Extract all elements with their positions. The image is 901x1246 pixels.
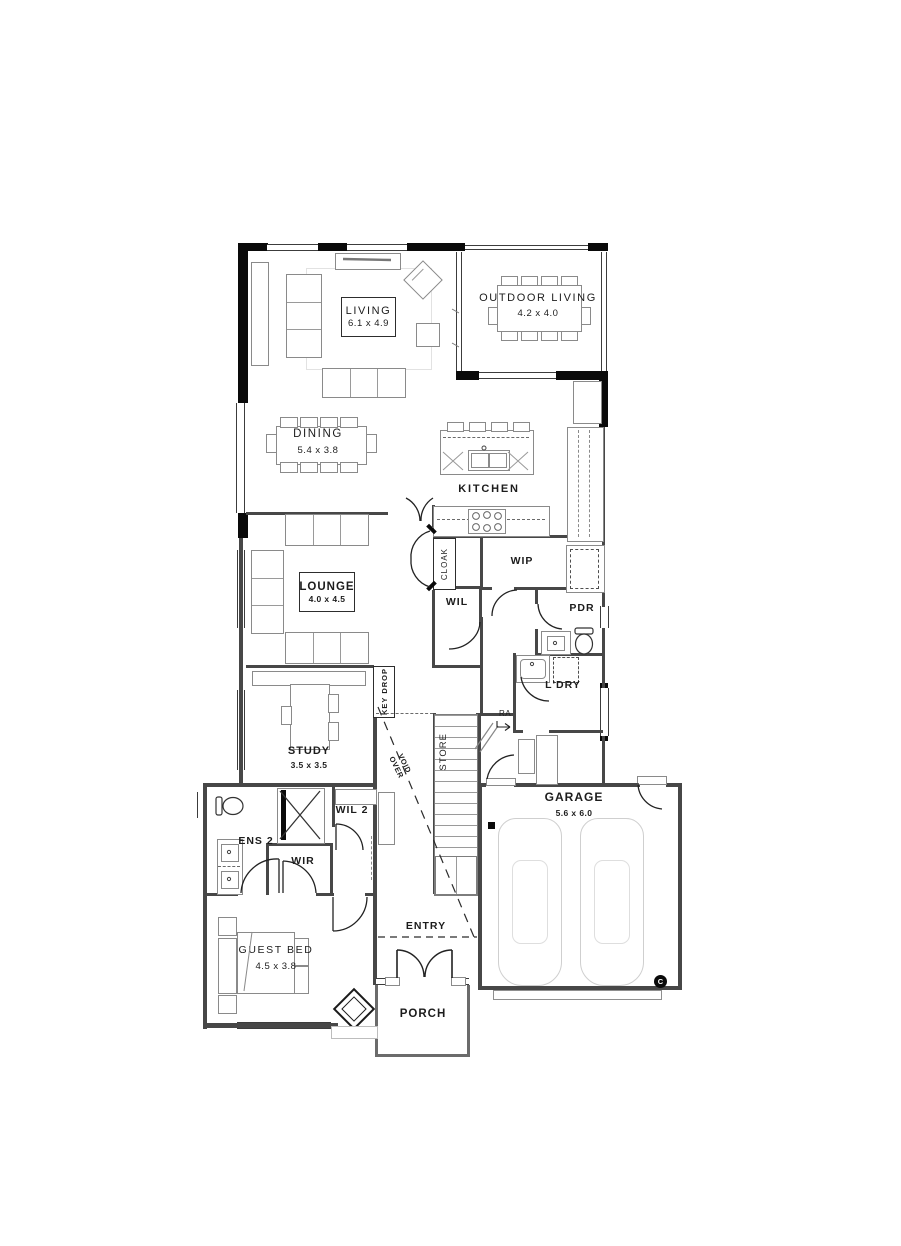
living-label-box: LIVING 6.1 x 4.9 [341,297,396,337]
wall-outdoor-sw [456,371,479,380]
cushion-line [287,329,321,330]
wall-porch-right [467,985,470,1057]
garage-service-door-leaf [637,776,667,785]
area-label-void-over: VOID OVER [384,745,416,787]
wall-right-mid [602,628,605,688]
wall-pdr-left-1 [535,590,538,604]
door-arc [241,859,279,893]
wall-wing-bottom [205,1023,338,1028]
wall-garage-left [478,783,482,990]
cushion-line [287,302,321,303]
floor-plan: CLOAK KEY DROP [0,0,901,1246]
outdoor-chair [561,276,578,286]
plan-linework [0,0,901,1246]
area-label-wil2: WIL 2 [336,804,369,816]
room-dims-outdoor-living: 4.2 x 4.0 [518,308,559,319]
lounge-sofa-top [285,514,369,546]
lounge-label-box: LOUNGE 4.0 x 4.5 [299,572,355,612]
window-pdr-right [600,606,609,628]
room-label-living: LIVING [346,305,392,317]
cushion-line [340,633,341,663]
area-label-ens2: ENS 2 [238,835,273,847]
entry-console [378,792,395,845]
wall-right-lower [602,736,605,787]
side-table [416,323,440,347]
wall-porch-left [375,985,378,1057]
nightstand [218,995,237,1014]
area-label-wil: WIL [446,596,468,608]
dining-chair [266,434,277,453]
bed-headboard [218,938,237,994]
pantry-cabinet [567,427,604,542]
room-label-study: STUDY [288,745,330,757]
living-sofa-left [286,274,322,358]
toilet-ens2 [216,797,243,815]
area-label-store: STORE [438,726,449,778]
armchair-line [412,269,424,281]
room-label-kitchen: KITCHEN [458,483,520,495]
sink-bowl [489,453,507,468]
room-label-garage: GARAGE [545,790,604,804]
dining-chair [280,462,298,473]
outdoor-cabinet [573,381,602,424]
dining-chair [366,434,377,453]
wall-top-3 [407,243,465,251]
wall-wir-left [266,843,269,895]
kitchen-stool [491,422,508,432]
study-chair [328,694,339,713]
sink-bowl [471,453,489,468]
wall-porch-bottom [375,1054,470,1057]
wall-wing-left [203,783,207,1029]
wall-top-2 [318,243,347,251]
ens2-basin [221,844,239,862]
cloak-label: CLOAK [440,548,449,580]
area-label-wip: WIP [511,555,534,567]
study-chair [328,722,339,741]
wall-ldry-bottom-2 [549,730,603,733]
wall-pdr-top-1 [482,587,492,590]
wall-lounge-bottom [246,665,374,668]
wall-wip-west-2 [480,617,483,715]
outdoor-chair [541,276,558,286]
dining-chair [340,417,358,428]
door-arc [425,950,452,977]
room-label-lounge: LOUNGE [299,581,354,593]
wil2-shelf [335,789,377,805]
dining-chair [300,417,318,428]
cushion-line [313,515,314,545]
fridge-space [570,549,599,589]
dining-chair [340,462,358,473]
room-dims-garage: 5.6 x 6.0 [556,808,593,818]
pdr-basin [547,636,565,651]
wall-garage-top-2 [514,783,640,787]
door-arc [411,531,430,559]
wall-left-mid [238,513,248,538]
hall-cabinet-small [518,739,535,774]
entry-door-jamb-right [451,977,466,986]
door-arc [538,604,562,629]
lounge-sofa-bottom [285,632,369,664]
wil2-rail-dashed [371,836,372,880]
landing-divider [456,857,457,894]
outdoor-chair [501,331,518,341]
wall-wir-right [330,843,333,895]
door-arc [492,590,517,616]
window-outdoor-top [465,245,588,250]
outdoor-chair [521,331,538,341]
wall-893-3 [365,893,375,896]
key-drop-label: KEY DROP [380,668,389,715]
outdoor-chair [501,276,518,286]
porch-column [333,988,375,1030]
wall-garage-right [678,783,682,990]
study-chair [281,706,292,725]
room-dims-dining: 5.4 x 3.8 [298,445,339,456]
kitchen-stool [513,422,530,432]
cushion-line [350,369,351,397]
ens2-basin [221,871,239,889]
room-label-guest-bed: GUEST BED [239,944,314,956]
area-label-pdr: PDR [569,602,594,614]
ra-arrow [497,721,510,731]
window-dining-left [236,403,245,513]
wall-garage-top-1 [478,783,486,787]
room-label-dining: DINING [293,428,343,440]
void-edge-dashed [376,713,433,714]
window-outdoor-bottom [479,372,556,379]
wall-left-upper [238,243,248,403]
cushion-line [313,633,314,663]
key-drop-nook: KEY DROP [373,666,395,718]
porch-column-inner [341,996,366,1021]
door-arc [487,755,514,779]
room-label-porch: PORCH [400,1008,447,1020]
shower-screen [281,790,286,840]
sideboard [251,262,269,366]
window-outdoor-right [601,252,607,371]
area-label-ldry: L'DRY [545,679,581,691]
dining-chair [320,417,338,428]
pier [488,822,495,829]
room-label-entry: ENTRY [406,920,446,932]
door-arc [333,897,367,931]
cushion-line [340,515,341,545]
kitchen-stool [447,422,464,432]
door-arc [406,498,420,521]
outdoor-chair [488,307,498,325]
cushion-line [252,578,283,579]
hall-cabinet-tall [536,735,558,785]
area-label-ra: RA [499,709,511,718]
wall-left-lower [239,538,243,783]
room-dims-guest-bed: 4.5 x 3.8 [256,961,297,972]
window-laundry-right [600,688,609,736]
stair-landing [435,856,477,895]
kitchen-stool [469,422,486,432]
nightstand [218,917,237,936]
stacker-door-living-outdoor [456,252,462,371]
column-marker: C [654,975,667,988]
cooktop [468,509,506,534]
garage-door-apron [493,990,662,1000]
door-arc [449,622,480,649]
trough-bowl [520,659,546,679]
room-dims-study: 3.5 x 3.5 [291,760,328,770]
pantry-shelf-line [578,430,579,537]
dining-chair [300,462,318,473]
living-sofa-bottom [322,368,406,398]
wall-wing-top [205,783,377,787]
dining-chair [320,462,338,473]
store-label-text: STORE [438,733,449,771]
car-roof [512,860,548,944]
car-roof [594,860,630,944]
island-overhang [443,437,529,438]
wall-ldry-bottom-1 [513,730,523,733]
wall-wip-west-1 [480,535,483,589]
entry-door-jamb-left [385,977,400,986]
room-dims-living: 6.1 x 4.9 [348,318,389,329]
porch-step [331,1026,378,1039]
wall-top-1 [245,243,268,251]
wall-entry-east [478,713,481,783]
lounge-sofa-left [251,550,284,634]
outdoor-chair [521,276,538,286]
wall-cloak-stub-bottom [432,590,435,668]
room-dims-lounge: 4.0 x 4.5 [309,594,346,604]
outdoor-chair [581,307,591,325]
window-living-top-1 [267,244,318,251]
room-label-outdoor-living: OUTDOOR LIVING [479,292,597,304]
wall-top-right-corner [588,243,608,251]
area-label-wir: WIR [291,855,314,867]
outdoor-chair [541,331,558,341]
door-arc [336,824,363,850]
column-marker-label: C [658,977,663,986]
door-arc [397,950,424,977]
dining-chair [280,417,298,428]
window-living-top-2 [347,244,407,251]
toilet-pdr [575,628,593,654]
garage-hall-door-leaf [486,778,516,786]
door-arc [411,559,430,587]
outdoor-chair [561,331,578,341]
vanity-split-line [218,866,240,867]
wall-pdr-left-2 [535,629,538,655]
cushion-line [252,605,283,606]
tv-unit [335,253,401,270]
pantry-shelf-line [589,430,590,537]
study-desk-stem [290,684,330,750]
wall-wil-bottom [433,665,482,668]
cushion-line [377,369,378,397]
door-arc [638,783,662,809]
